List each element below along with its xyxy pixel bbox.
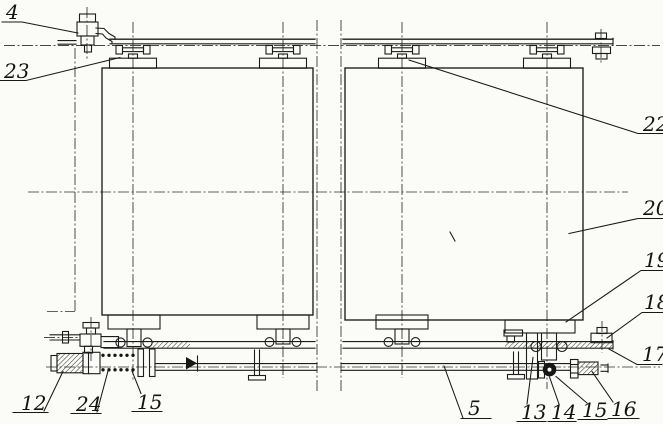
drawing-svg: 4 23 22 20 19 18 17 12 24 15 5 13 14 15 …	[0, 0, 663, 424]
callout-5-leader	[444, 366, 463, 418]
callout-12-label: 12	[21, 391, 46, 415]
top-rail	[58, 38, 613, 45]
rail-support-stand-2	[504, 330, 525, 379]
callout-23-label: 23	[3, 59, 29, 83]
surface-tick	[450, 232, 455, 241]
threaded-adjuster	[51, 352, 100, 373]
spring	[101, 354, 134, 372]
flange-plates	[138, 349, 155, 377]
callout-22-label: 22	[642, 112, 663, 136]
callout-18-label: 18	[644, 290, 663, 314]
break-lines	[317, 20, 341, 392]
callout-13-label: 13	[521, 400, 546, 424]
callout-leaders	[0, 22, 663, 422]
callout-12-leader	[44, 372, 63, 412]
callout-15a-label: 15	[137, 390, 162, 414]
section-arrow	[186, 357, 197, 370]
shaft-knob	[543, 363, 557, 377]
callout-4-label: 4	[5, 0, 19, 24]
left-panel	[102, 68, 313, 315]
callout-13-leader	[527, 358, 533, 405]
callout-5-label: 5	[468, 396, 481, 420]
callout-14-label: 14	[551, 400, 576, 424]
callout-16-label: 16	[611, 397, 637, 421]
callout-19-label: 19	[644, 248, 663, 272]
grease-valve-top	[77, 14, 115, 52]
rail-support-stand-1	[249, 350, 266, 380]
coupling	[571, 360, 599, 379]
drive-shaft	[155, 356, 608, 372]
technical-drawing: 4 23 22 20 19 18 17 12 24 15 5 13 14 15 …	[0, 0, 663, 424]
bottom-guide-1	[108, 315, 160, 347]
callout-18-leader	[607, 313, 663, 339]
callout-22-leader	[409, 60, 663, 134]
callout-15b-label: 15	[582, 398, 607, 422]
callout-17-label: 17	[642, 342, 663, 366]
callout-24-label: 24	[75, 392, 101, 416]
guide-block	[591, 328, 612, 343]
callout-20-label: 20	[642, 196, 663, 220]
